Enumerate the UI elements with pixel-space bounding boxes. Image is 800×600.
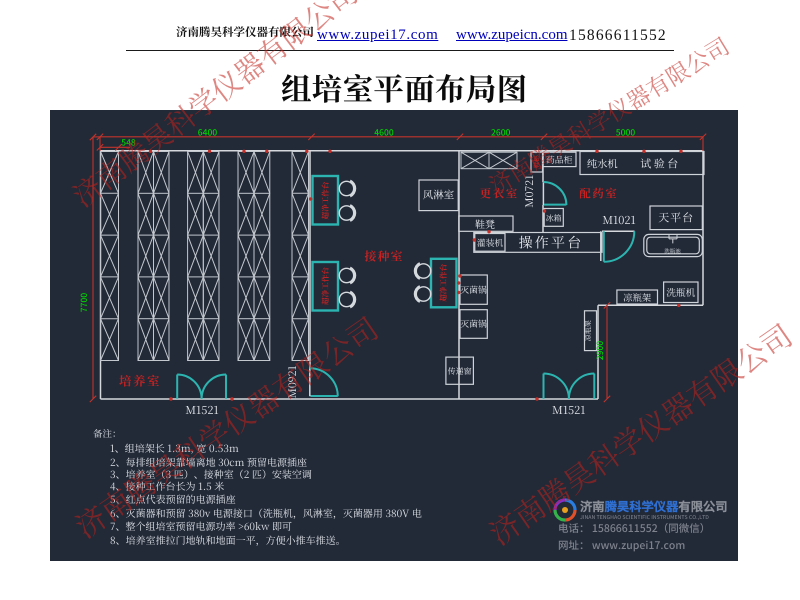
svg-text:凉瓶架: 凉瓶架 — [584, 320, 594, 341]
svg-text:超净工作台: 超净工作台 — [320, 267, 331, 305]
svg-text:试验台: 试验台 — [640, 155, 681, 171]
svg-text:超净工作台: 超净工作台 — [320, 181, 331, 219]
svg-text:接种室: 接种室 — [364, 248, 403, 265]
svg-text:灌装机: 灌装机 — [477, 236, 504, 249]
svg-text:鞋凳: 鞋凳 — [475, 216, 495, 231]
svg-text:风淋室: 风淋室 — [423, 188, 455, 203]
svg-text:培养室: 培养室 — [119, 371, 161, 389]
svg-text:M1021: M1021 — [602, 212, 635, 228]
svg-text:配药室: 配药室 — [579, 186, 618, 202]
svg-text:纯水机: 纯水机 — [587, 156, 618, 171]
svg-text:操作平台: 操作平台 — [519, 233, 584, 253]
svg-text:传递窗: 传递窗 — [448, 366, 472, 377]
svg-text:M1521: M1521 — [552, 402, 585, 418]
svg-text:冰箱: 冰箱 — [546, 213, 562, 224]
svg-text:洗瓶池: 洗瓶池 — [664, 247, 681, 255]
svg-text:天平台: 天平台 — [658, 210, 694, 226]
svg-text:洗瓶机: 洗瓶机 — [666, 285, 695, 299]
svg-text:4600: 4600 — [374, 126, 394, 138]
svg-text:5000: 5000 — [616, 126, 636, 138]
svg-text:超净工作台: 超净工作台 — [438, 263, 449, 301]
svg-text:灭菌锅: 灭菌锅 — [460, 283, 487, 296]
svg-text:2600: 2600 — [491, 126, 511, 138]
svg-text:2900: 2900 — [594, 341, 606, 361]
svg-text:灭菌锅: 灭菌锅 — [460, 317, 487, 330]
svg-text:7700: 7700 — [78, 293, 90, 313]
svg-text:凉瓶架: 凉瓶架 — [623, 290, 652, 304]
